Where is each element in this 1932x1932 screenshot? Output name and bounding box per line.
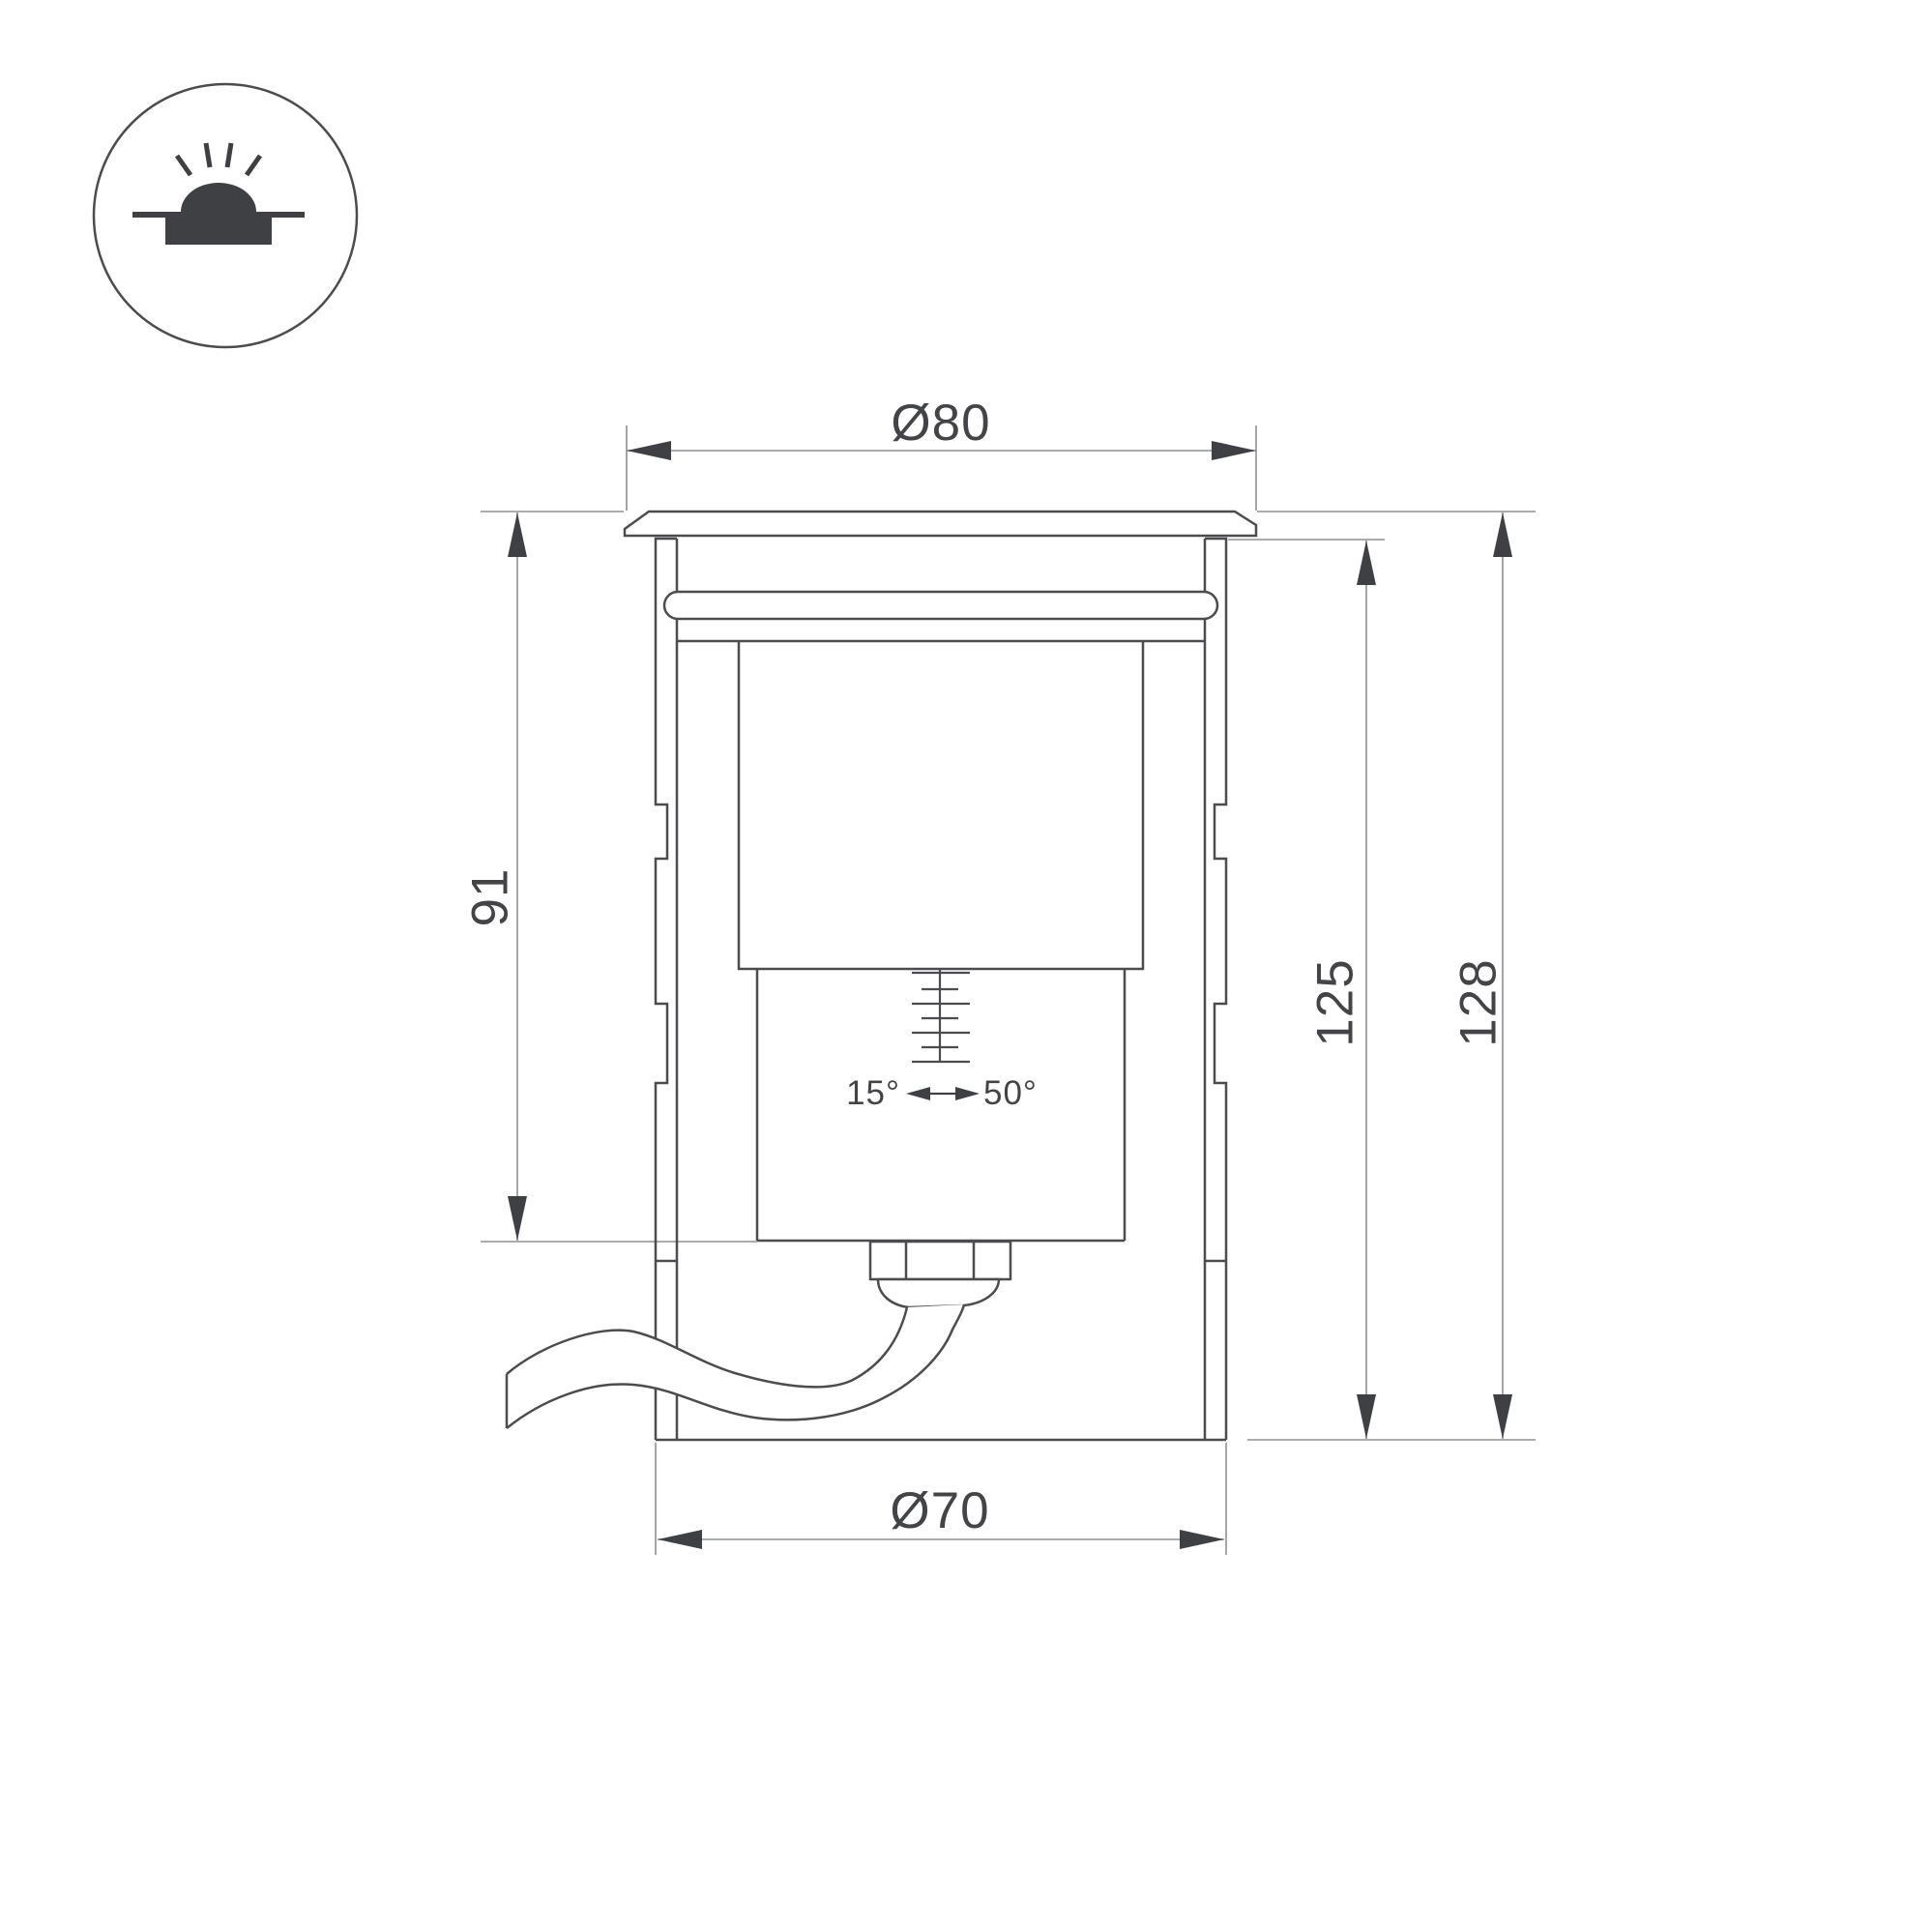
- gland-nut: [870, 1242, 1010, 1279]
- upper-module: [739, 641, 1143, 969]
- fixture-section-view: [507, 512, 1256, 1440]
- cable: [507, 1304, 964, 1428]
- dimension-total-height: 128: [1450, 512, 1512, 1439]
- dim-body-height-label: 125: [1307, 958, 1364, 1046]
- arrow-up-icon: [1357, 541, 1376, 585]
- arrow-left-icon: [658, 1530, 702, 1549]
- arrow-right-icon: [1180, 1530, 1224, 1549]
- flange-outline: [625, 512, 1256, 536]
- dim-recess-depth-label: 91: [462, 868, 519, 927]
- arrow-left-icon: [906, 1087, 930, 1100]
- dimension-top-diameter: Ø80: [627, 395, 1256, 460]
- arrow-down-icon: [508, 1196, 527, 1241]
- dim-top-diameter-label: Ø80: [891, 395, 990, 452]
- left-wall: [656, 539, 677, 1440]
- tilt-max-label: 50°: [983, 1074, 1038, 1112]
- tilt-min-label: 15°: [846, 1074, 900, 1112]
- dimension-body-height: 125: [1307, 541, 1376, 1439]
- arrow-down-icon: [1357, 1394, 1376, 1439]
- glass-ring: [664, 592, 1217, 619]
- arrow-down-icon: [1493, 1394, 1512, 1439]
- cable-body: [507, 1304, 964, 1428]
- drawing-page: Ø80 91 125 128 Ø70 15° 50°: [0, 0, 1932, 1932]
- icon-ground-line: [132, 212, 305, 218]
- arrow-up-icon: [1493, 512, 1512, 557]
- arrow-right-icon: [955, 1087, 980, 1100]
- gland-boot: [878, 1279, 999, 1307]
- arrow-up-icon: [508, 512, 527, 557]
- right-wall: [1205, 539, 1226, 1440]
- icon-light-rays: [177, 143, 260, 175]
- icon-recessed-box: [165, 218, 272, 245]
- right-wall-outer: [1205, 539, 1226, 1440]
- cable-gland: [870, 1242, 1010, 1307]
- dimension-recess-depth: 91: [462, 512, 527, 1241]
- technical-drawing-canvas: Ø80 91 125 128 Ø70 15° 50°: [0, 0, 1932, 1932]
- tilt-range-annotation: 15° 50°: [846, 1074, 1038, 1112]
- arrow-left-icon: [627, 441, 671, 460]
- dim-bottom-diameter-label: Ø70: [890, 1482, 989, 1539]
- left-wall-outer: [656, 539, 677, 1440]
- dimension-bottom-diameter: Ø70: [658, 1482, 1224, 1549]
- dim-total-height-label: 128: [1450, 958, 1508, 1046]
- recessed-light-icon: [94, 84, 357, 347]
- icon-light-dome: [181, 183, 256, 212]
- tilt-scale: [912, 969, 970, 1062]
- arrow-right-icon: [1212, 441, 1256, 460]
